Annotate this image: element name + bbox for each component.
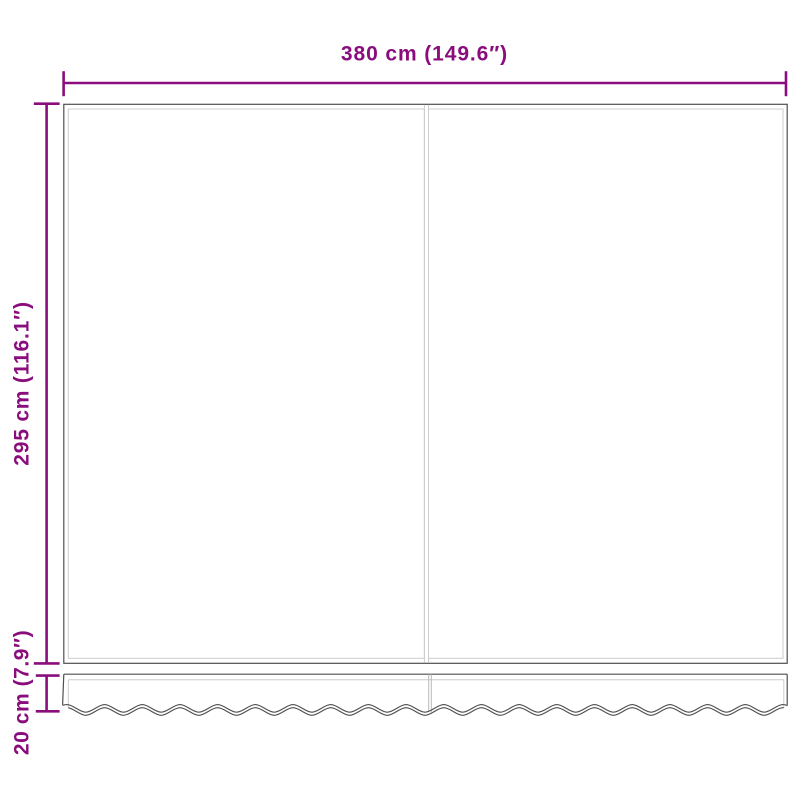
svg-text:380 cm (149.6″): 380 cm (149.6″): [341, 43, 508, 66]
svg-text:295 cm (116.1″): 295 cm (116.1″): [10, 301, 33, 466]
svg-text:20 cm (7.9″): 20 cm (7.9″): [10, 630, 33, 755]
